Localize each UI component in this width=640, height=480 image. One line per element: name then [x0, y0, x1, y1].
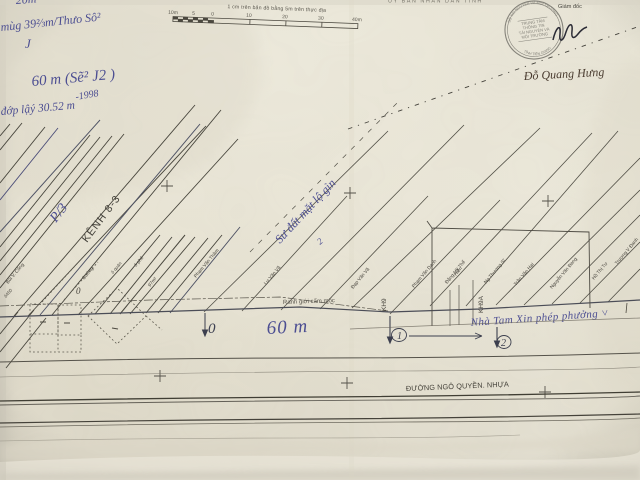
svg-text:0: 0	[211, 11, 214, 17]
svg-text:Giám đốc: Giám đốc	[558, 4, 582, 10]
svg-text:KH9A: KH9A	[478, 295, 485, 313]
svg-text:10: 10	[246, 13, 252, 19]
svg-text:10m: 10m	[168, 10, 178, 16]
svg-text:1: 1	[397, 331, 402, 342]
svg-text:2: 2	[501, 338, 506, 349]
svg-text:40m: 40m	[352, 17, 362, 23]
svg-text:5: 5	[192, 11, 195, 17]
svg-text:KH9: KH9	[381, 298, 388, 311]
svg-text:0: 0	[76, 286, 81, 296]
svg-text:30: 30	[318, 16, 324, 22]
svg-text:0: 0	[208, 321, 216, 337]
svg-text:20: 20	[282, 14, 288, 20]
svg-text:60 m: 60 m	[266, 316, 309, 339]
svg-text:ỦY BAN NHÂN DÂN TỈNH: ỦY BAN NHÂN DÂN TỈNH	[388, 0, 483, 5]
